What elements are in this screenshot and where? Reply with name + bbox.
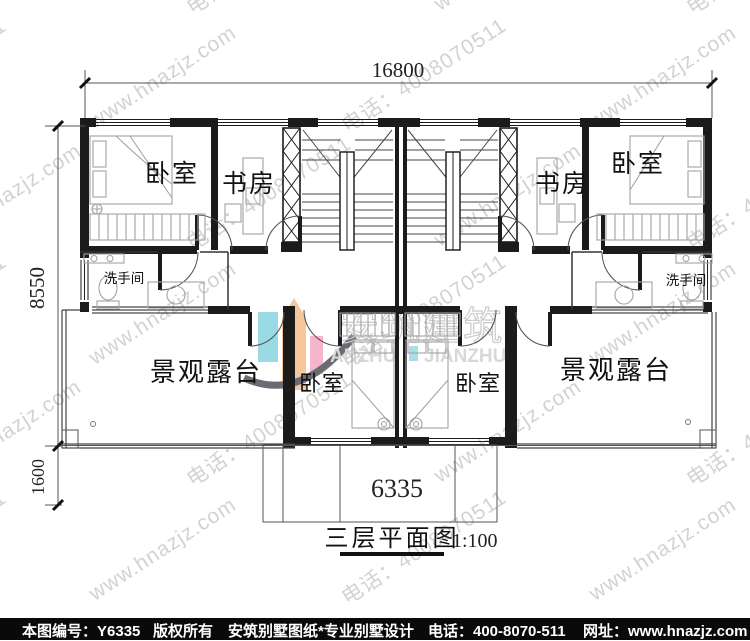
sink-left	[167, 286, 185, 304]
footer-company: 安筑别墅图纸*专业别墅设计	[228, 620, 414, 641]
dim-left-upper: 8550	[25, 267, 49, 309]
drawing-title: 三层平面图 1:100	[325, 526, 498, 556]
plan-scale: 1:100	[452, 530, 498, 552]
plan-title: 三层平面图	[325, 526, 460, 552]
label-bedroom-top-left: 卧室	[145, 160, 199, 188]
label-washroom-right: 洗手间	[666, 273, 707, 288]
brand-en-left: ANZHU	[330, 346, 397, 367]
label-terrace-left: 景观露台	[150, 358, 262, 387]
dim-left-lower: 1600	[28, 459, 48, 495]
label-washroom-left: 洗手间	[104, 271, 145, 286]
staircase-left	[302, 130, 393, 250]
sink-right	[615, 286, 633, 304]
title-underline	[340, 552, 444, 556]
label-bedroom-top-right: 卧室	[611, 150, 665, 178]
dim-bottom: 6335	[371, 474, 423, 503]
label-terrace-right: 景观露台	[560, 356, 672, 385]
dim-top: 16800	[372, 58, 425, 82]
floor-plan: 安筑建筑 ANZHU JIANZHU	[0, 0, 750, 618]
title-block-bar: 本图编号：Y6335 版权所有 安筑别墅图纸*专业别墅设计 电话：400-807…	[0, 618, 750, 640]
label-study-left: 书房	[222, 170, 276, 198]
label-bedroom-bottom-right: 卧室	[455, 371, 501, 396]
logo-teal-bar	[258, 312, 278, 362]
staircase-right	[407, 130, 498, 250]
wardrobe-top-left	[90, 214, 205, 240]
footer-copyright: 版权所有	[153, 620, 213, 641]
label-bedroom-bottom-left: 卧室	[299, 371, 345, 396]
footer-drawing-number: 本图编号：Y6335	[22, 620, 140, 641]
label-study-right: 书房	[535, 170, 589, 198]
footer-website: 网址：www.hnazjz.com	[583, 620, 747, 641]
shaft-columns	[283, 128, 517, 242]
brand-en-right: JIANZHU	[424, 346, 506, 367]
drawing-sheet: www.hnazjz.com电话：4008070511www.hnazjz.co…	[0, 0, 750, 640]
footer-phone: 电话：400-8070-511	[428, 620, 566, 641]
